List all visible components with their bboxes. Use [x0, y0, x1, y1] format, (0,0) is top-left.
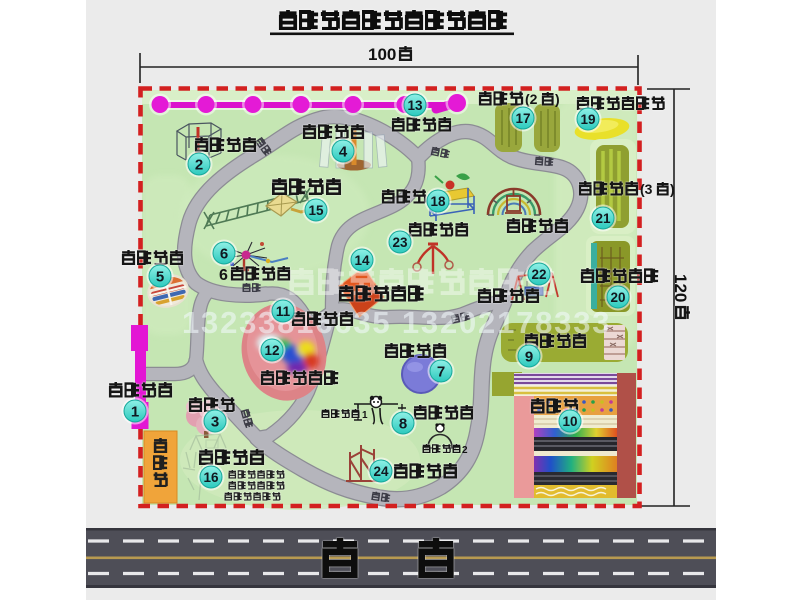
svg-text:): ) — [555, 91, 560, 107]
svg-text:23: 23 — [392, 235, 408, 250]
svg-text:11: 11 — [276, 304, 291, 319]
svg-text:): ) — [670, 181, 675, 197]
svg-text:2: 2 — [195, 156, 203, 173]
svg-text:16: 16 — [203, 470, 219, 485]
svg-text:13: 13 — [407, 98, 423, 113]
svg-text:20: 20 — [610, 290, 625, 305]
svg-text:120: 120 — [671, 274, 690, 302]
svg-text:14: 14 — [354, 253, 370, 268]
svg-text:6: 6 — [219, 267, 228, 284]
svg-text:17: 17 — [515, 111, 530, 126]
svg-text:22: 22 — [531, 267, 546, 282]
svg-text:19: 19 — [580, 112, 595, 127]
svg-text:3: 3 — [211, 413, 219, 430]
svg-text:9: 9 — [525, 348, 533, 365]
svg-text:8: 8 — [399, 415, 407, 432]
svg-text:1: 1 — [131, 403, 139, 420]
svg-text:5: 5 — [156, 268, 164, 285]
svg-text:10: 10 — [562, 414, 577, 429]
svg-text:(3: (3 — [640, 181, 653, 197]
svg-text:1: 1 — [362, 410, 368, 421]
svg-text:7: 7 — [437, 363, 445, 380]
svg-text:15: 15 — [308, 203, 324, 218]
svg-text:24: 24 — [373, 464, 389, 479]
svg-text:4: 4 — [339, 143, 348, 160]
svg-text:(2: (2 — [525, 91, 538, 107]
svg-text:21: 21 — [595, 211, 611, 226]
svg-text:12: 12 — [264, 343, 279, 358]
svg-text:100: 100 — [368, 45, 396, 64]
svg-text:2: 2 — [462, 445, 468, 456]
svg-text:18: 18 — [430, 194, 446, 209]
svg-text:6: 6 — [220, 245, 228, 262]
